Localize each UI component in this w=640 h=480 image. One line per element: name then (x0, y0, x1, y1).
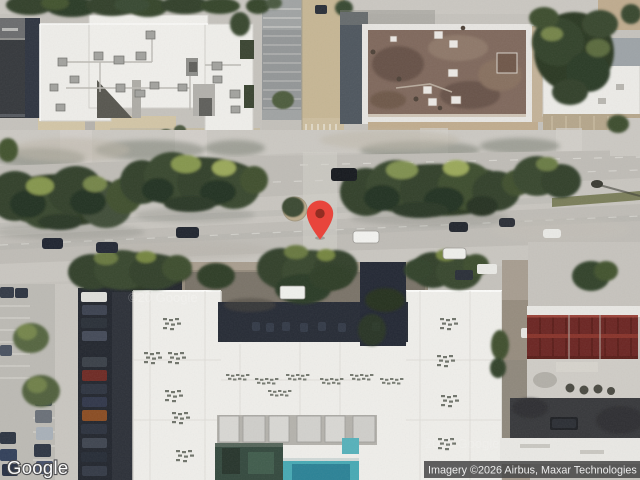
svg-text:Google: Google (7, 457, 68, 478)
svg-text:2026 Google: 2026 Google (425, 436, 499, 451)
svg-text:©20 Google: ©20 Google (128, 290, 198, 305)
svg-text:Imagery ©2026 Airbus, Maxar Te: Imagery ©2026 Airbus, Maxar Technologies (428, 465, 637, 477)
